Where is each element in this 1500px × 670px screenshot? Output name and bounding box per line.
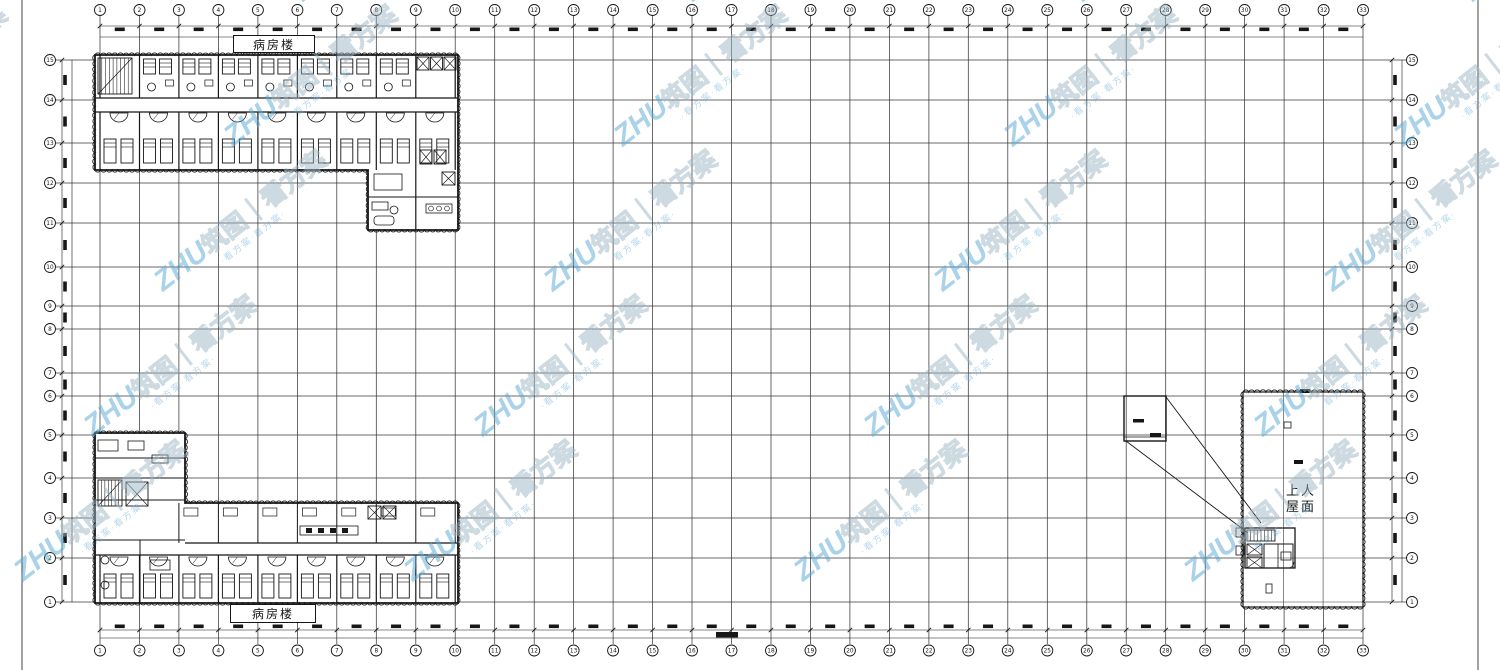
svg-text:8: 8 [48, 327, 52, 333]
svg-text:17: 17 [728, 649, 736, 655]
svg-text:12: 12 [1408, 181, 1416, 187]
svg-text:5: 5 [1410, 433, 1414, 439]
detail-callout [1124, 396, 1261, 533]
svg-text:11: 11 [491, 8, 499, 14]
svg-text:7: 7 [1410, 371, 1414, 377]
axis-markers-top: 1234567891011121314151617181920212223242… [95, 5, 1369, 16]
svg-text:14: 14 [609, 649, 617, 655]
svg-text:2: 2 [138, 8, 142, 14]
svg-text:22: 22 [925, 649, 933, 655]
svg-text:25: 25 [1044, 649, 1052, 655]
svg-text:8: 8 [374, 649, 378, 655]
svg-text:5: 5 [48, 433, 52, 439]
svg-text:3: 3 [1410, 516, 1414, 522]
svg-text:1: 1 [48, 600, 52, 606]
plan-canvas: 1234567891011121314151617181920212223242… [0, 0, 1500, 670]
svg-text:29: 29 [1202, 8, 1210, 14]
svg-text:9: 9 [414, 8, 418, 14]
svg-text:2: 2 [138, 649, 142, 655]
axis-markers-right: 151413121110987654321 [1407, 55, 1418, 608]
svg-text:1: 1 [98, 649, 102, 655]
floor-plan-sheet: 1234567891011121314151617181920212223242… [0, 0, 1500, 670]
svg-text:17: 17 [728, 8, 736, 14]
svg-text:7: 7 [335, 649, 339, 655]
svg-text:16: 16 [688, 649, 696, 655]
svg-text:12: 12 [531, 649, 539, 655]
svg-text:31: 31 [1280, 649, 1288, 655]
svg-text:14: 14 [46, 98, 54, 104]
svg-text:4: 4 [48, 476, 52, 482]
svg-text:12: 12 [531, 8, 539, 14]
svg-text:21: 21 [886, 8, 894, 14]
svg-text:15: 15 [1408, 58, 1416, 64]
svg-text:5: 5 [256, 649, 260, 655]
svg-text:13: 13 [1408, 141, 1416, 147]
svg-text:6: 6 [296, 649, 300, 655]
svg-text:10: 10 [452, 649, 460, 655]
svg-text:10: 10 [452, 8, 460, 14]
svg-text:32: 32 [1320, 8, 1328, 14]
accessible-roof-label: 上人屋面 [1286, 483, 1316, 515]
svg-text:5: 5 [256, 8, 260, 14]
svg-text:22: 22 [925, 8, 933, 14]
svg-text:18: 18 [767, 8, 775, 14]
svg-text:20: 20 [846, 8, 854, 14]
svg-text:12: 12 [46, 181, 54, 187]
svg-text:24: 24 [1004, 649, 1012, 655]
svg-text:33: 33 [1359, 8, 1367, 14]
svg-text:9: 9 [1410, 304, 1414, 310]
svg-text:27: 27 [1123, 8, 1131, 14]
axis-markers-left: 151413121110987654321 [45, 55, 56, 608]
axis-markers-bottom: 1234567891011121314151617181920212223242… [95, 645, 1369, 656]
svg-text:8: 8 [1410, 327, 1414, 333]
accessible-roof-label-line2: 屋面 [1286, 499, 1316, 515]
svg-text:24: 24 [1004, 8, 1012, 14]
svg-text:7: 7 [48, 371, 52, 377]
svg-text:11: 11 [46, 221, 54, 227]
svg-text:19: 19 [807, 8, 815, 14]
svg-text:14: 14 [1408, 98, 1416, 104]
svg-text:2: 2 [48, 556, 52, 562]
svg-text:32: 32 [1320, 649, 1328, 655]
svg-text:28: 28 [1162, 8, 1170, 14]
svg-text:6: 6 [296, 8, 300, 14]
svg-text:28: 28 [1162, 649, 1170, 655]
svg-text:16: 16 [688, 8, 696, 14]
svg-text:10: 10 [1408, 265, 1416, 271]
svg-text:30: 30 [1241, 8, 1249, 14]
ward-building-label-top: 病房楼 [233, 35, 315, 53]
svg-text:15: 15 [46, 58, 54, 64]
svg-text:6: 6 [48, 394, 52, 400]
svg-text:10: 10 [46, 265, 54, 271]
svg-text:27: 27 [1123, 649, 1131, 655]
svg-text:8: 8 [374, 8, 378, 14]
svg-text:3: 3 [48, 516, 52, 522]
svg-text:29: 29 [1202, 649, 1210, 655]
svg-text:30: 30 [1241, 649, 1249, 655]
svg-text:3: 3 [177, 8, 181, 14]
svg-text:2: 2 [1410, 556, 1414, 562]
svg-text:14: 14 [609, 8, 617, 14]
svg-text:15: 15 [649, 649, 657, 655]
svg-text:13: 13 [570, 8, 578, 14]
svg-text:6: 6 [1410, 394, 1414, 400]
svg-text:23: 23 [965, 649, 973, 655]
svg-text:18: 18 [767, 649, 775, 655]
svg-text:4: 4 [217, 649, 221, 655]
ward-building-bottom [93, 431, 460, 605]
svg-text:25: 25 [1044, 8, 1052, 14]
svg-text:23: 23 [965, 8, 973, 14]
svg-text:31: 31 [1280, 8, 1288, 14]
svg-text:26: 26 [1083, 649, 1091, 655]
svg-text:4: 4 [1410, 476, 1414, 482]
svg-text:1: 1 [98, 8, 102, 14]
svg-text:15: 15 [649, 8, 657, 14]
svg-text:26: 26 [1083, 8, 1091, 14]
ward-building-top [93, 53, 460, 232]
svg-text:3: 3 [177, 649, 181, 655]
svg-text:13: 13 [570, 649, 578, 655]
svg-text:9: 9 [48, 304, 52, 310]
svg-text:11: 11 [491, 649, 499, 655]
svg-text:7: 7 [335, 8, 339, 14]
svg-text:4: 4 [217, 8, 221, 14]
svg-text:1: 1 [1410, 600, 1414, 606]
svg-text:19: 19 [807, 649, 815, 655]
svg-text:20: 20 [846, 649, 854, 655]
accessible-roof-label-line1: 上人 [1286, 483, 1316, 499]
svg-text:13: 13 [46, 141, 54, 147]
svg-text:9: 9 [414, 649, 418, 655]
svg-text:11: 11 [1408, 221, 1416, 227]
ward-building-label-bottom: 病房楼 [230, 604, 316, 623]
svg-text:33: 33 [1359, 649, 1367, 655]
svg-text:21: 21 [886, 649, 894, 655]
